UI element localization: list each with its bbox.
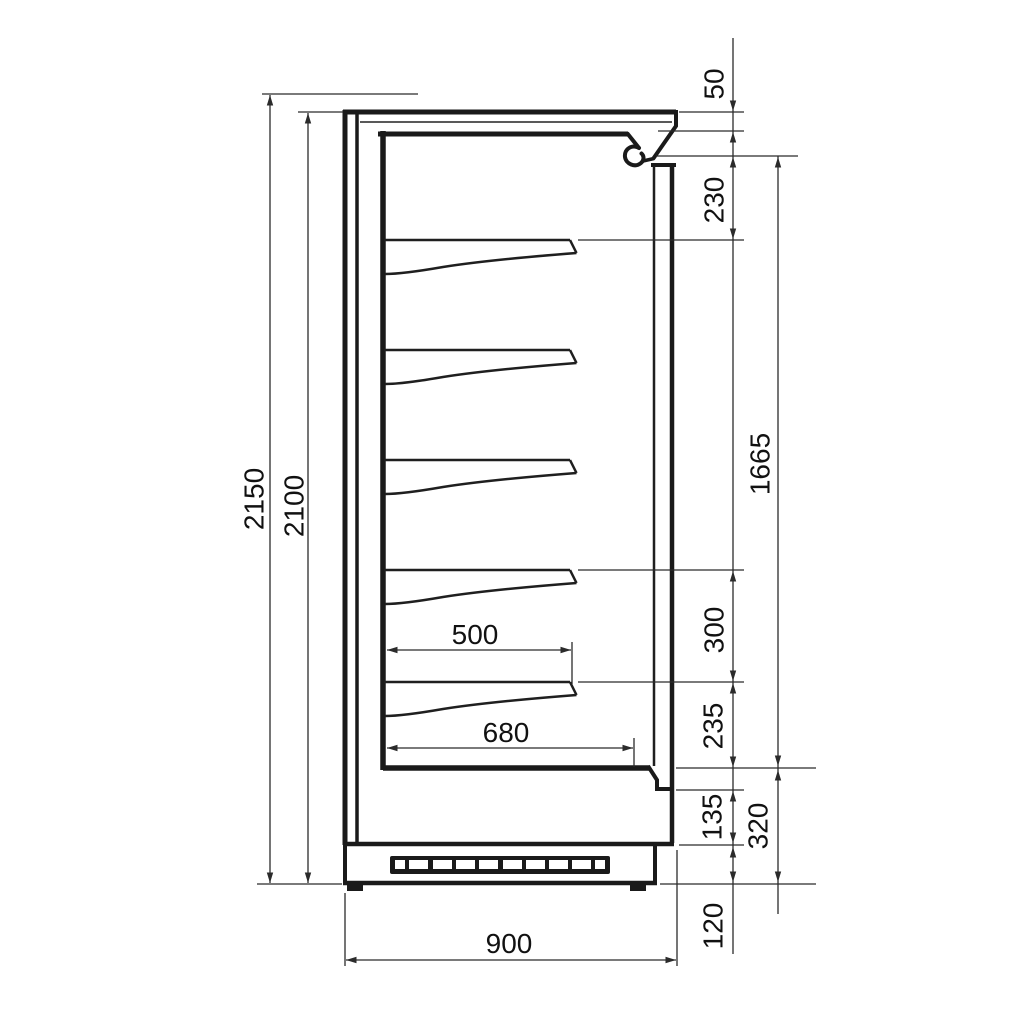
shelf-1 <box>384 240 577 274</box>
dimension-labels: 2150 2100 50 230 1665 300 235 135 320 12… <box>239 68 776 959</box>
dim-label-display-opening: 1665 <box>745 433 776 495</box>
top-cap <box>417 93 528 112</box>
dim-label-first-shelf-offset: 230 <box>699 177 730 224</box>
shelf-5 <box>384 682 577 716</box>
dim-label-overall-height: 2150 <box>239 468 270 530</box>
front-top-corner <box>653 110 676 159</box>
cabinet-body <box>343 93 676 891</box>
dim-label-overall-depth: 900 <box>486 928 533 959</box>
dim-label-plinth: 120 <box>698 903 729 950</box>
dim-label-shelf-depth: 500 <box>452 619 499 650</box>
drawing-canvas: 2150 2100 50 230 1665 300 235 135 320 12… <box>0 0 1024 1024</box>
dim-label-bottom-shelf-offset: 235 <box>698 703 729 750</box>
dim-label-bottom-deck-depth: 680 <box>483 717 530 748</box>
shelf-4 <box>384 570 577 604</box>
shelf-2 <box>384 350 577 384</box>
foot-right <box>630 884 646 891</box>
dim-label-lower-front-panel: 135 <box>697 794 728 841</box>
drip-hook-lip <box>643 159 654 162</box>
shelf-3 <box>384 460 577 494</box>
foot-left <box>347 884 363 891</box>
dim-label-shelf-spacing: 300 <box>699 607 730 654</box>
drip-hook-curl <box>625 147 644 166</box>
technical-drawing: 2150 2100 50 230 1665 300 235 135 320 12… <box>0 0 1024 1024</box>
ventilation-grille <box>390 856 610 874</box>
dim-label-base-section: 320 <box>743 803 774 850</box>
dim-label-top-panel: 50 <box>699 68 730 99</box>
dim-label-height-without-top: 2100 <box>279 475 310 537</box>
deck-front-step <box>648 766 673 789</box>
